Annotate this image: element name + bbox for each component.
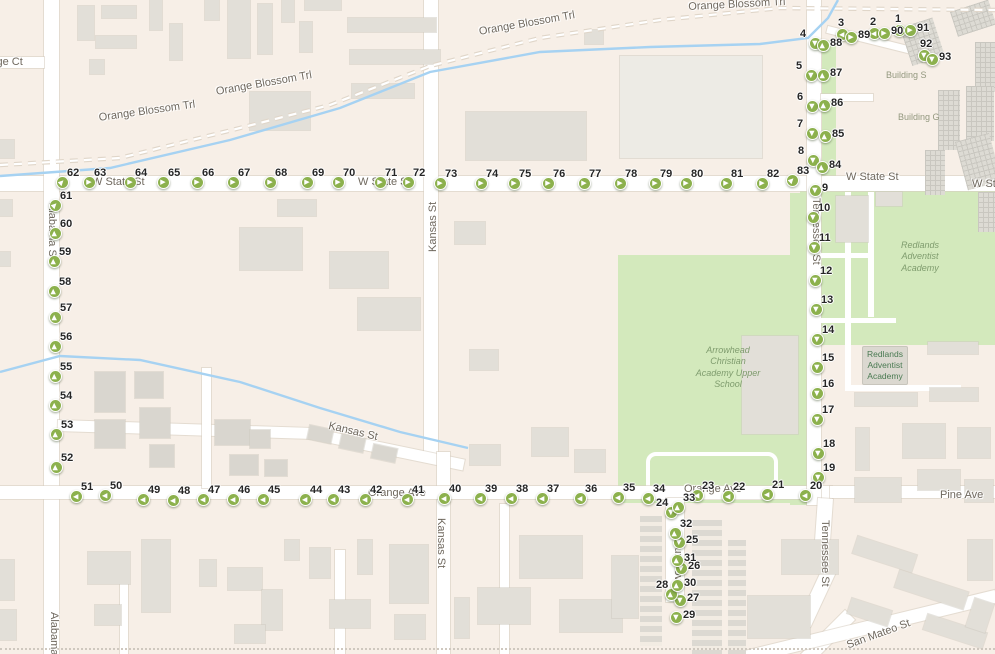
direction-arrow-icon: ▶ [645, 495, 650, 502]
route-marker-label: 57 [60, 302, 72, 314]
direction-arrow-icon: ▶ [907, 27, 912, 34]
route-marker-87[interactable]: ▶ [817, 69, 830, 82]
route-marker-label: 64 [135, 167, 147, 179]
direction-arrow-icon: ▶ [302, 496, 307, 503]
direction-arrow-icon: ▶ [810, 244, 817, 249]
route-marker-label: 59 [59, 246, 71, 258]
route-marker-label: 34 [653, 483, 665, 495]
direction-arrow-icon: ▶ [441, 495, 446, 502]
route-marker-29[interactable]: ▶ [670, 611, 683, 624]
route-marker-85[interactable]: ▶ [819, 130, 832, 143]
direction-arrow-icon: ▶ [51, 343, 58, 348]
direction-arrow-icon: ▶ [809, 214, 816, 219]
route-marker-label: 15 [822, 352, 834, 364]
direction-arrow-icon: ▶ [881, 30, 886, 37]
route-marker-label: 6 [797, 91, 803, 103]
route-marker-label: 52 [61, 452, 73, 464]
route-marker-label: 93 [939, 51, 951, 63]
route-marker-label: 65 [168, 167, 180, 179]
direction-arrow-icon: ▶ [50, 288, 57, 293]
direction-arrow-icon: ▶ [871, 30, 876, 37]
route-marker-label: 23 [702, 480, 714, 492]
route-marker-label: 9 [822, 182, 828, 194]
direction-arrow-icon: ▶ [813, 336, 820, 341]
route-marker-label: 43 [338, 484, 350, 496]
route-marker-label: 35 [623, 482, 635, 494]
direction-arrow-icon: ▶ [335, 179, 340, 186]
direction-arrow-icon: ▶ [814, 450, 821, 455]
route-marker-label: 32 [680, 518, 692, 530]
direction-arrow-icon: ▶ [928, 56, 935, 61]
street-label: Kansas St [427, 202, 439, 252]
direction-arrow-icon: ▶ [671, 530, 678, 535]
direction-arrow-icon: ▶ [673, 557, 680, 562]
direction-arrow-icon: ▶ [52, 431, 59, 436]
route-marker-label: 40 [449, 483, 461, 495]
direction-arrow-icon: ▶ [807, 72, 814, 77]
building-label-box: Redlands Adventist Academy [862, 346, 908, 385]
route-marker-label: 60 [60, 218, 72, 230]
route-marker-91[interactable]: ▶ [904, 24, 917, 37]
direction-arrow-icon: ▶ [437, 180, 442, 187]
route-marker-label: 24 [656, 497, 668, 509]
direction-arrow-icon: ▶ [73, 493, 78, 500]
route-marker-label: 12 [820, 265, 832, 277]
route-marker-label: 77 [589, 168, 601, 180]
route-marker-9[interactable]: ▶ [809, 184, 822, 197]
direction-arrow-icon: ▶ [675, 539, 682, 544]
route-marker-label: 27 [687, 592, 699, 604]
direction-arrow-icon: ▶ [51, 201, 60, 210]
direction-arrow-icon: ▶ [819, 42, 826, 47]
direction-arrow-icon: ▶ [52, 464, 59, 469]
direction-arrow-icon: ▶ [581, 180, 586, 187]
direction-arrow-icon: ▶ [58, 178, 67, 187]
route-marker-label: 39 [485, 483, 497, 495]
route-marker-label: 21 [772, 479, 784, 491]
street-label: Tennessee St [819, 520, 831, 587]
direction-arrow-icon: ▶ [140, 496, 145, 503]
direction-arrow-icon: ▶ [51, 402, 58, 407]
route-marker-label: 33 [683, 492, 695, 504]
route-marker-label: 16 [822, 378, 834, 390]
route-marker-label: 8 [798, 145, 804, 157]
direction-arrow-icon: ▶ [260, 496, 265, 503]
route-marker-label: 58 [59, 276, 71, 288]
route-marker-label: 37 [547, 483, 559, 495]
route-marker-label: 92 [920, 38, 932, 50]
route-marker-label: 7 [797, 118, 803, 130]
direction-arrow-icon: ▶ [813, 416, 820, 421]
area-label: Arrowhead Christian Academy Upper School [668, 345, 788, 390]
route-marker-label: 88 [830, 37, 842, 49]
route-marker-84[interactable]: ▶ [816, 161, 829, 174]
direction-arrow-icon: ▶ [809, 157, 816, 162]
direction-arrow-icon: ▶ [819, 72, 826, 77]
direction-arrow-icon: ▶ [539, 495, 544, 502]
direction-arrow-icon: ▶ [230, 496, 235, 503]
street-label: Pine Ave [940, 489, 983, 501]
route-marker-label: 87 [830, 67, 842, 79]
direction-arrow-icon: ▶ [545, 180, 550, 187]
route-marker-label: 29 [683, 609, 695, 621]
route-marker-label: 67 [238, 167, 250, 179]
direction-arrow-icon: ▶ [577, 495, 582, 502]
direction-arrow-icon: ▶ [802, 492, 807, 499]
route-marker-label: 10 [818, 202, 830, 214]
building-name-label: Building S [886, 70, 936, 80]
street-label: Orange Ct [0, 56, 23, 68]
route-marker-93[interactable]: ▶ [926, 53, 939, 66]
direction-arrow-icon: ▶ [821, 133, 828, 138]
direction-arrow-icon: ▶ [508, 495, 513, 502]
direction-arrow-icon: ▶ [86, 179, 91, 186]
route-marker-label: 5 [796, 60, 802, 72]
building-name-label: Building G [898, 112, 948, 122]
direction-arrow-icon: ▶ [362, 496, 367, 503]
direction-arrow-icon: ▶ [813, 390, 820, 395]
route-marker-label: 48 [178, 485, 190, 497]
route-marker-30[interactable]: ▶ [671, 579, 684, 592]
direction-arrow-icon: ▶ [820, 102, 827, 107]
direction-arrow-icon: ▶ [667, 591, 674, 596]
route-marker-label: 42 [370, 484, 382, 496]
route-marker-label: 76 [553, 168, 565, 180]
route-marker-label: 83 [797, 165, 809, 177]
route-marker-label: 46 [238, 484, 250, 496]
route-marker-label: 69 [312, 167, 324, 179]
route-marker-label: 70 [343, 167, 355, 179]
route-marker-label: 47 [208, 484, 220, 496]
route-marker-label: 49 [148, 484, 160, 496]
direction-arrow-icon: ▶ [304, 179, 309, 186]
route-marker-label: 55 [60, 361, 72, 373]
street-label: W State St [846, 171, 899, 183]
route-marker-label: 81 [731, 168, 743, 180]
direction-arrow-icon: ▶ [51, 230, 58, 235]
route-marker-label: 44 [310, 484, 322, 496]
route-marker-label: 53 [61, 419, 73, 431]
direction-arrow-icon: ▶ [617, 180, 622, 187]
route-marker-label: 74 [486, 168, 498, 180]
direction-arrow-icon: ▶ [194, 179, 199, 186]
route-marker-label: 72 [413, 167, 425, 179]
direction-arrow-icon: ▶ [50, 258, 57, 263]
direction-arrow-icon: ▶ [330, 496, 335, 503]
direction-arrow-icon: ▶ [814, 474, 821, 479]
route-marker-88[interactable]: ▶ [817, 39, 830, 52]
route-marker-label: 30 [684, 577, 696, 589]
route-marker-label: 56 [60, 331, 72, 343]
route-marker-label: 36 [585, 483, 597, 495]
direction-arrow-icon: ▶ [672, 614, 679, 619]
direction-arrow-icon: ▶ [812, 306, 819, 311]
route-marker-label: 86 [831, 97, 843, 109]
route-marker-label: 28 [656, 579, 668, 591]
direction-arrow-icon: ▶ [683, 180, 688, 187]
direction-arrow-icon: ▶ [267, 179, 272, 186]
route-marker-86[interactable]: ▶ [818, 99, 831, 112]
route-marker-label: 20 [810, 480, 822, 492]
direction-arrow-icon: ▶ [811, 277, 818, 282]
route-marker-label: 19 [823, 462, 835, 474]
route-marker-label: 73 [445, 168, 457, 180]
street-label: Alabama St [48, 612, 60, 654]
direction-arrow-icon: ▶ [808, 130, 815, 135]
boundary-dotted-line [0, 648, 995, 650]
route-marker-label: 1 [895, 13, 901, 25]
route-marker-label: 14 [822, 324, 834, 336]
route-marker-5[interactable]: ▶ [805, 69, 818, 82]
route-marker-7[interactable]: ▶ [806, 127, 819, 140]
waterways-and-trail [0, 0, 995, 654]
direction-arrow-icon: ▶ [673, 582, 680, 587]
route-marker-label: 45 [268, 484, 280, 496]
route-marker-90[interactable]: ▶ [878, 27, 891, 40]
direction-arrow-icon: ▶ [377, 179, 382, 186]
direction-arrow-icon: ▶ [674, 504, 681, 509]
route-marker-label: 13 [821, 294, 833, 306]
direction-arrow-icon: ▶ [788, 176, 797, 185]
route-marker-label: 31 [684, 552, 696, 564]
direction-arrow-icon: ▶ [808, 103, 815, 108]
route-marker-label: 82 [767, 168, 779, 180]
route-marker-31[interactable]: ▶ [671, 554, 684, 567]
area-label: Redlands Adventist Academy [880, 240, 960, 274]
route-marker-label: 89 [858, 29, 870, 41]
direction-arrow-icon: ▶ [170, 497, 175, 504]
map-canvas[interactable]: Orange CtOrange Blossom TrlOrange Blosso… [0, 0, 995, 654]
direction-arrow-icon: ▶ [404, 496, 409, 503]
direction-arrow-icon: ▶ [405, 179, 410, 186]
direction-arrow-icon: ▶ [723, 180, 728, 187]
route-marker-label: 41 [412, 484, 424, 496]
route-marker-label: 62 [67, 167, 79, 179]
direction-arrow-icon: ▶ [813, 364, 820, 369]
route-marker-label: 3 [838, 17, 844, 29]
direction-arrow-icon: ▶ [848, 34, 853, 41]
direction-arrow-icon: ▶ [230, 179, 235, 186]
route-marker-label: 51 [81, 481, 93, 493]
direction-arrow-icon: ▶ [811, 187, 818, 192]
route-marker-label: 85 [832, 128, 844, 140]
direction-arrow-icon: ▶ [725, 493, 730, 500]
direction-arrow-icon: ▶ [818, 164, 825, 169]
street-label: Kansas St [435, 518, 447, 568]
route-marker-label: 25 [686, 534, 698, 546]
route-marker-label: 90 [891, 25, 903, 37]
route-marker-label: 11 [819, 232, 831, 244]
direction-arrow-icon: ▶ [676, 597, 683, 602]
route-marker-label: 17 [822, 404, 834, 416]
route-marker-label: 79 [660, 168, 672, 180]
direction-arrow-icon: ▶ [511, 180, 516, 187]
route-marker-label: 54 [60, 390, 72, 402]
direction-arrow-icon: ▶ [160, 179, 165, 186]
route-marker-label: 2 [870, 16, 876, 28]
route-marker-label: 18 [823, 438, 835, 450]
direction-arrow-icon: ▶ [477, 495, 482, 502]
direction-arrow-icon: ▶ [51, 373, 58, 378]
route-marker-label: 61 [60, 190, 72, 202]
route-marker-label: 22 [733, 481, 745, 493]
direction-arrow-icon: ▶ [478, 180, 483, 187]
direction-arrow-icon: ▶ [652, 180, 657, 187]
direction-arrow-icon: ▶ [764, 491, 769, 498]
route-marker-label: 50 [110, 480, 122, 492]
route-marker-label: 75 [519, 168, 531, 180]
route-marker-6[interactable]: ▶ [806, 100, 819, 113]
direction-arrow-icon: ▶ [51, 314, 58, 319]
route-marker-label: 78 [625, 168, 637, 180]
route-marker-label: 66 [202, 167, 214, 179]
route-marker-label: 71 [385, 167, 397, 179]
direction-arrow-icon: ▶ [102, 492, 107, 499]
street-label: W State St [972, 178, 995, 190]
direction-arrow-icon: ▶ [615, 494, 620, 501]
direction-arrow-icon: ▶ [759, 180, 764, 187]
route-marker-label: 4 [800, 28, 806, 40]
route-marker-label: 38 [516, 483, 528, 495]
route-marker-89[interactable]: ▶ [845, 31, 858, 44]
route-marker-label: 68 [275, 167, 287, 179]
direction-arrow-icon: ▶ [127, 179, 132, 186]
route-marker-label: 84 [829, 159, 841, 171]
route-marker-label: 63 [94, 167, 106, 179]
route-marker-label: 91 [917, 22, 929, 34]
direction-arrow-icon: ▶ [200, 496, 205, 503]
route-marker-label: 80 [691, 168, 703, 180]
